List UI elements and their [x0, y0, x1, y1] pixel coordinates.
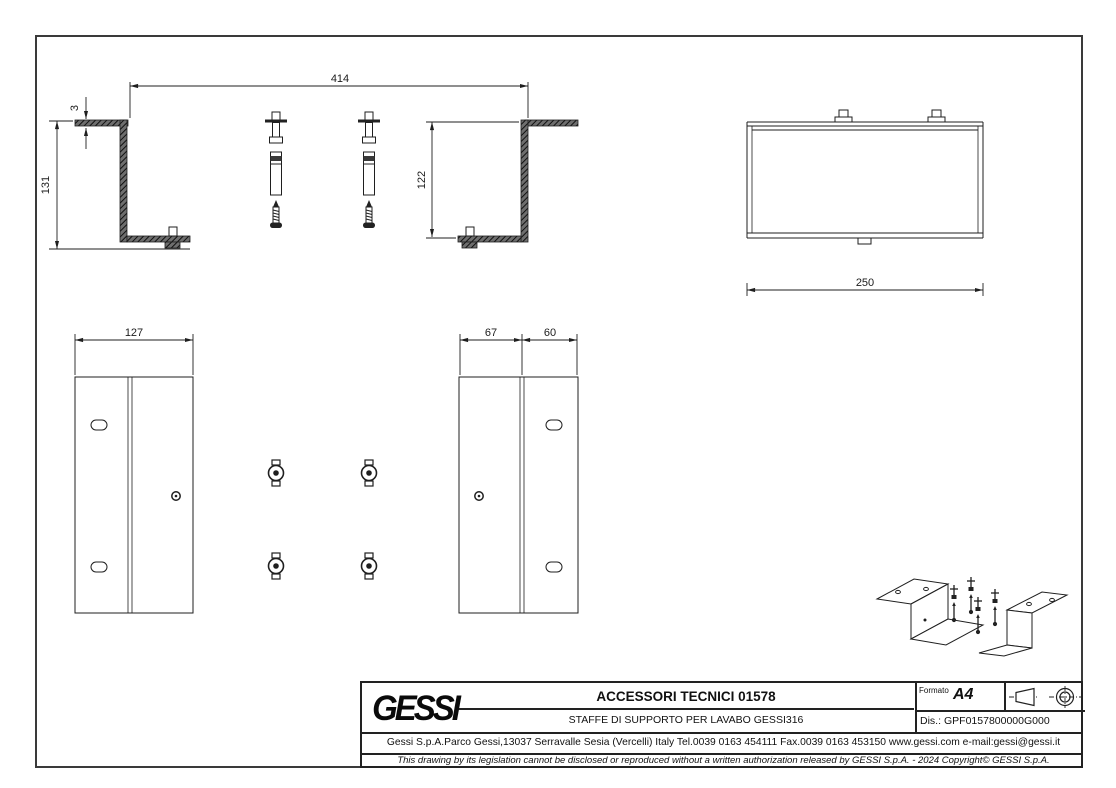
iso-anchor: [967, 577, 975, 614]
dim-label-height-right: 122: [416, 171, 428, 189]
screw-top-symbol: [269, 460, 284, 486]
front-view: 250: [747, 110, 983, 296]
dim-label-right-segment: 60: [544, 327, 556, 339]
iso-bracket-right: [979, 592, 1067, 656]
isometric-view: [877, 577, 1067, 656]
drawing-title: ACCESSORI TECNICI 01578: [458, 686, 914, 708]
dim-label-height-left: 131: [40, 176, 52, 194]
dim-label-width: 414: [331, 73, 349, 85]
dim-label-plate-width: 127: [125, 327, 143, 339]
drawing-sheet: 414 3 131 122: [0, 0, 1116, 788]
z-bracket-left-profile: [75, 120, 190, 248]
fixing-tab-1: [835, 110, 852, 122]
title-block-divider: [915, 683, 917, 734]
title-block: GESSI ACCESSORI TECNICI 01578 STAFFE DI …: [360, 681, 1083, 768]
fixing-tab-2: [928, 110, 945, 122]
iso-anchor: [991, 589, 999, 626]
dim-label-left-segment: 67: [485, 327, 497, 339]
format-value: A4: [953, 686, 973, 704]
dim-label-thickness: 3: [69, 105, 81, 111]
company-address-line: Gessi S.p.A.Parco Gessi,13037 Serravalle…: [362, 732, 1085, 753]
anchor-top-symbols: [269, 460, 377, 579]
plan-view-left: 127: [75, 327, 193, 613]
z-bracket-right-profile: [458, 120, 578, 248]
plan-left-dimensions: [75, 334, 193, 375]
technical-drawing-canvas: 414 3 131 122: [0, 0, 1116, 788]
wall-anchor-2: [358, 112, 380, 228]
drawing-subtitle: STAFFE DI SUPPORTO PER LAVABO GESSI316: [458, 710, 914, 731]
first-angle-projection-icon: [1006, 684, 1083, 709]
side-view: 414 3 131 122: [40, 73, 578, 249]
format-label: Formato: [919, 686, 949, 695]
screw-top-symbol: [269, 553, 284, 579]
wall-anchor-1: [265, 112, 287, 228]
copyright-legal-line: This drawing by its legislation cannot b…: [362, 753, 1085, 768]
screw-top-symbol: [362, 553, 377, 579]
iso-bracket-left: [877, 579, 983, 645]
screw-top-symbol: [362, 460, 377, 486]
iso-anchor: [950, 585, 958, 622]
drawing-code: Dis.:GPF0157800000G000: [920, 710, 1085, 732]
plan-view-right: 67 60: [459, 327, 578, 613]
dim-label-front-width: 250: [856, 277, 874, 289]
gessi-logo: GESSI: [372, 681, 458, 734]
drawing-code-label: Dis.:: [920, 715, 941, 727]
bottom-slot: [858, 238, 871, 244]
plan-right-dimensions: [460, 334, 577, 375]
drawing-code-value: GPF0157800000G000: [944, 715, 1050, 727]
